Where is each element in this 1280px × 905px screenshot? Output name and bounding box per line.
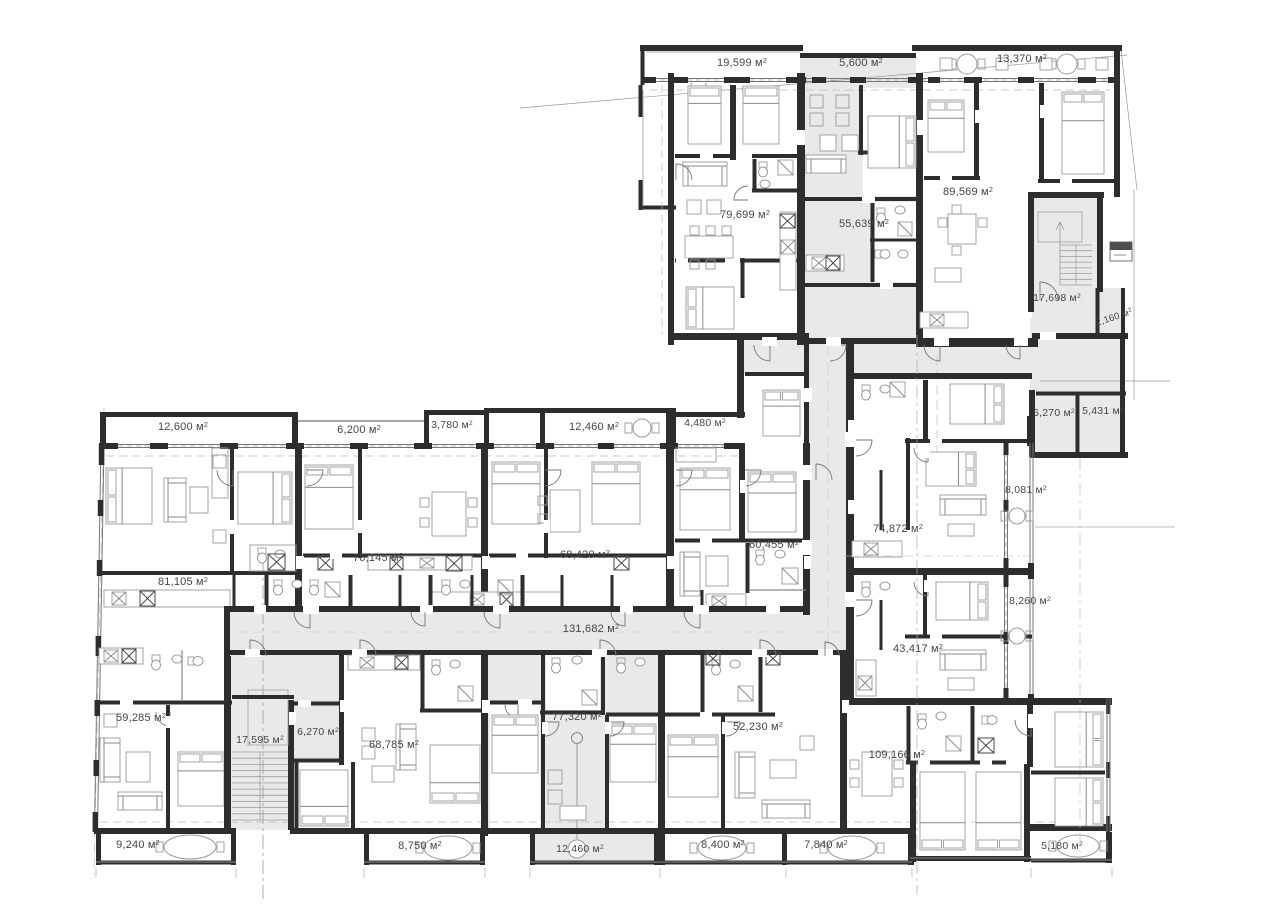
svg-text:8,400 м2: 8,400 м2 [701,838,745,851]
svg-text:19,599 м2: 19,599 м2 [717,56,767,69]
svg-text:79,699 м2: 79,699 м2 [720,208,770,221]
svg-text:4,480 м2: 4,480 м2 [684,417,726,429]
svg-text:5,431 м2: 5,431 м2 [1082,405,1124,417]
svg-text:12,460 м2: 12,460 м2 [556,843,604,855]
svg-text:70,145 м2: 70,145 м2 [353,551,403,564]
svg-text:8,750 м2: 8,750 м2 [398,839,442,852]
svg-text:7,840 м2: 7,840 м2 [804,838,848,851]
svg-text:8,260 м2: 8,260 м2 [1009,595,1051,607]
svg-text:12,600 м2: 12,600 м2 [158,420,208,433]
svg-text:59,285 м2: 59,285 м2 [116,711,166,724]
svg-text:6,270 м2: 6,270 м2 [1033,407,1075,419]
svg-text:68,785 м2: 68,785 м2 [369,738,419,751]
svg-text:131,682 м2: 131,682 м2 [563,622,619,635]
svg-text:9,240 м2: 9,240 м2 [116,838,160,851]
svg-text:8,081 м2: 8,081 м2 [1005,484,1047,496]
svg-text:43,417 м2: 43,417 м2 [893,642,943,655]
svg-text:68,420 м2: 68,420 м2 [560,548,610,561]
svg-text:89,569 м2: 89,569 м2 [943,185,993,198]
svg-text:3,780 м2: 3,780 м2 [431,419,473,431]
svg-text:5,180 м2: 5,180 м2 [1041,840,1083,852]
svg-text:12,460 м2: 12,460 м2 [569,420,619,433]
svg-text:60,455 м2: 60,455 м2 [749,538,799,551]
svg-text:17,595 м2: 17,595 м2 [236,734,284,746]
svg-text:5,600 м2: 5,600 м2 [839,56,883,69]
svg-text:77,320 м2: 77,320 м2 [552,710,602,723]
svg-text:81,105 м2: 81,105 м2 [158,575,208,588]
svg-text:6,200 м2: 6,200 м2 [337,423,381,436]
svg-text:13,370 м2: 13,370 м2 [997,52,1047,65]
svg-text:52,230 м2: 52,230 м2 [733,720,783,733]
svg-text:6,270 м2: 6,270 м2 [297,726,339,738]
svg-text:55,639 м2: 55,639 м2 [839,217,889,230]
